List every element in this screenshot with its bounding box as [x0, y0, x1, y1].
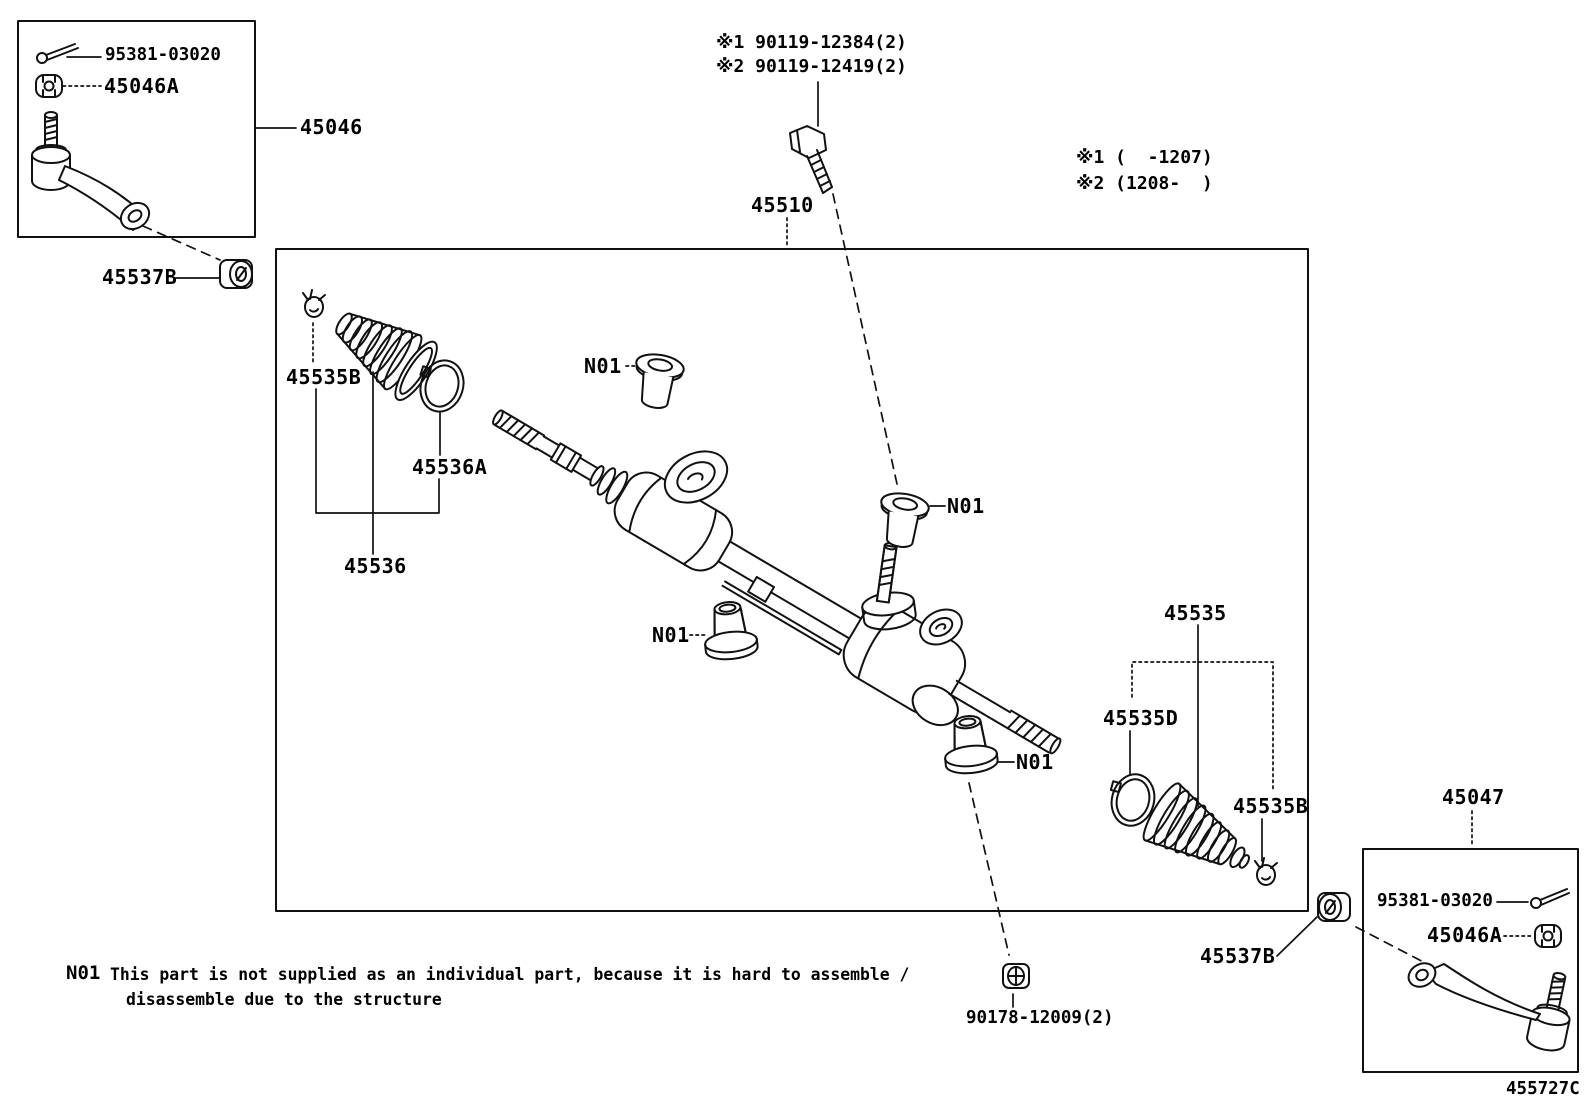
- cotter-pin-icon-right: [1531, 889, 1569, 908]
- part-label-cotter-pin-left: 95381-03020: [105, 47, 221, 65]
- rack-stopper-nut-drawing: [1003, 964, 1029, 988]
- castle-nut-icon-right: [1535, 925, 1561, 947]
- part-label-45536a: 45536A: [412, 457, 487, 477]
- grommet-label-1: N01: [584, 356, 622, 376]
- boot-clip-drawing-right: [1255, 858, 1277, 885]
- part-label-45047: 45047: [1442, 787, 1505, 807]
- part-label-45537b-right: 45537B: [1200, 946, 1275, 966]
- part-label-45535d: 45535D: [1103, 708, 1178, 728]
- grommet-label-2: N01: [947, 496, 985, 516]
- parts-diagram-page: 95381-03020 45046A 45046 45537B ※1 90119…: [0, 0, 1592, 1099]
- castle-nut-icon-left: [36, 75, 62, 97]
- part-label-cotter-pin-right: 95381-03020: [1377, 893, 1493, 911]
- mounting-bolt-drawing: [790, 126, 832, 193]
- applicability-ref-1: ※1 ( -1207): [1076, 149, 1213, 167]
- part-label-45536: 45536: [344, 556, 407, 576]
- part-label-castle-nut-left: 45046A: [104, 76, 179, 96]
- footnote-line-1: This part is not supplied as an individu…: [110, 962, 909, 987]
- part-label-45510: 45510: [751, 195, 814, 215]
- part-label-45535: 45535: [1164, 603, 1227, 623]
- grommet-label-3: N01: [652, 625, 690, 645]
- bolt-ref-2: ※2 90119-12419(2): [716, 58, 907, 76]
- grommet-drawing-3: [701, 600, 759, 662]
- tie-rod-end-drawing-left: [32, 112, 154, 234]
- figure-code: 455727C: [1506, 1081, 1580, 1099]
- lock-nut-icon-right: [1318, 893, 1350, 921]
- clamp-ring-drawing-right: [1103, 769, 1160, 831]
- steering-rack-drawing: [473, 383, 1077, 785]
- grommet-drawing-2: [874, 490, 930, 551]
- boot-clip-drawing-left: [303, 290, 325, 317]
- part-label-45535b-left: 45535B: [286, 367, 361, 387]
- group-box-right-tie-rod: [1363, 849, 1578, 1072]
- applicability-ref-2: ※2 (1208- ): [1076, 175, 1213, 193]
- cotter-pin-icon-left: [37, 44, 78, 63]
- footnote-line-2: disassemble due to the structure: [126, 987, 442, 1012]
- tie-rod-end-drawing-right: [1404, 959, 1578, 1054]
- part-label-45046: 45046: [300, 117, 363, 137]
- part-label-castle-nut-right: 45046A: [1427, 925, 1502, 945]
- part-label-45535b-right: 45535B: [1233, 796, 1308, 816]
- part-label-90178: 90178-12009(2): [966, 1010, 1114, 1028]
- footnote-ref: N01: [66, 962, 100, 984]
- grommet-label-4: N01: [1016, 752, 1054, 772]
- grommet-drawing-1: [629, 351, 685, 412]
- bolt-ref-1: ※1 90119-12384(2): [716, 34, 907, 52]
- diagram-line-art: [0, 0, 1592, 1099]
- lock-nut-icon-left: [220, 260, 252, 288]
- part-label-45537b-left: 45537B: [102, 267, 177, 287]
